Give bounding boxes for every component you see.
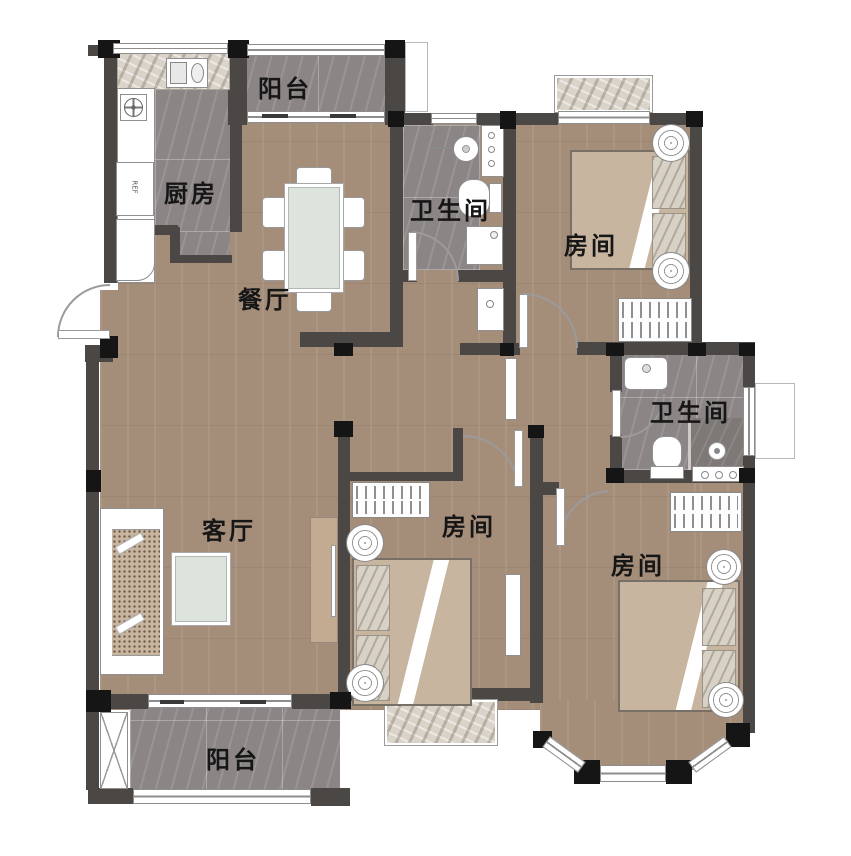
wall	[503, 113, 516, 355]
toilet-right-bathroom	[652, 436, 682, 470]
room-label-bedroom-middle: 房间	[442, 507, 496, 542]
wall	[577, 342, 755, 355]
column	[334, 421, 353, 437]
bedroom-bottom-right-door-leaf	[556, 488, 565, 546]
wall	[338, 423, 350, 694]
room-label-bathroom-right: 卫生间	[650, 393, 731, 428]
wall	[311, 788, 350, 806]
bay-window-bottom	[600, 765, 666, 782]
exterior-shaft	[405, 42, 428, 112]
washing-machine	[466, 226, 503, 265]
wall	[610, 355, 622, 392]
wardrobe-bedroom-bottom-right	[670, 492, 742, 532]
column	[86, 690, 111, 712]
room-label-living: 客厅	[202, 511, 256, 546]
cabinet-knob-icon	[486, 300, 494, 308]
slider-handle-icon	[240, 700, 266, 704]
balcony-bottom-window	[133, 789, 311, 804]
nightstand-icon	[652, 124, 690, 162]
exterior-gap	[388, 100, 705, 113]
basin-spout-icon	[432, 147, 454, 149]
column	[330, 692, 351, 709]
column	[86, 470, 101, 492]
washbasin-right-bathroom	[624, 357, 668, 390]
room-label-bedroom-top-right: 房间	[564, 226, 618, 261]
dining-table	[288, 187, 340, 289]
kitchen-window	[113, 43, 228, 54]
wall	[338, 472, 463, 481]
nightstand-icon	[708, 682, 744, 718]
nightstand-icon	[652, 252, 690, 290]
wall	[170, 255, 232, 263]
window-planter-box	[555, 76, 652, 112]
dining-chair	[262, 250, 287, 281]
tv-screen-icon	[331, 545, 336, 617]
wall	[88, 788, 133, 804]
column	[528, 425, 544, 438]
wall	[86, 350, 99, 694]
column	[388, 111, 404, 127]
room-label-bedroom-bottom-right: 房间	[611, 546, 665, 581]
column	[686, 111, 703, 127]
column	[228, 40, 249, 58]
kitchen-cabinet	[116, 219, 155, 281]
bathroom-right-window	[743, 387, 755, 456]
fridge-label: REF	[131, 180, 139, 193]
nightstand-icon	[346, 524, 384, 562]
slider-handle-icon	[262, 114, 288, 118]
wall	[610, 435, 622, 472]
bathroom-right-door-leaf	[612, 390, 621, 437]
room-label-balcony-top: 阳台	[258, 69, 312, 104]
balcony-top-window	[247, 44, 385, 56]
bath-cabinet	[692, 466, 744, 482]
wall	[390, 113, 403, 347]
column	[688, 343, 706, 356]
column	[385, 40, 405, 58]
dining-chair	[262, 197, 287, 228]
column	[334, 343, 353, 356]
column	[606, 343, 624, 356]
sink-bowl-left-icon	[170, 62, 187, 84]
shower-dot-icon	[714, 448, 720, 454]
sofa	[100, 508, 164, 675]
duct-shaft-icon	[100, 712, 128, 789]
bathroom-top-door-leaf	[408, 232, 417, 281]
dining-chair	[340, 250, 365, 281]
wall	[403, 113, 433, 125]
bathroom-window-bay	[755, 383, 795, 459]
wall	[458, 270, 515, 282]
column	[500, 111, 516, 129]
bathroom-top-window	[431, 113, 477, 124]
wall	[530, 425, 543, 703]
column	[739, 343, 755, 356]
slider-handle-icon	[160, 700, 184, 704]
stove-burner-icon	[124, 98, 143, 117]
dining-chair	[296, 167, 332, 189]
wall	[743, 355, 755, 387]
bedroom-middle-door-leaf	[514, 430, 523, 487]
dining-chair	[296, 290, 332, 312]
entry-door-leaf	[58, 330, 110, 339]
tv-cabinet-bedroom-middle	[505, 574, 521, 656]
hall-doorframe-strip	[505, 358, 517, 420]
nightstand-icon	[706, 549, 742, 585]
sink-bowl-right-icon	[191, 63, 204, 83]
column	[666, 760, 692, 784]
room-label-bathroom-top: 卫生间	[410, 191, 491, 226]
bedroom-top-right-window	[558, 111, 650, 124]
column	[100, 336, 118, 358]
washbasin-drain-icon	[462, 145, 470, 153]
shoe-cabinet	[477, 288, 504, 331]
washer-dial-icon	[490, 231, 498, 239]
wardrobe-bedroom-middle	[352, 482, 430, 518]
room-label-dining: 餐厅	[238, 280, 292, 315]
basin-faucet-icon	[642, 364, 651, 373]
wall	[743, 483, 755, 733]
toilet-tank-icon	[650, 466, 684, 479]
column	[500, 343, 514, 356]
wall	[230, 113, 242, 232]
shelf-knob-icon	[488, 132, 495, 139]
room-label-balcony-bottom: 阳台	[206, 740, 260, 775]
column	[739, 468, 755, 483]
shelf-knob-icon	[488, 146, 495, 153]
room-label-kitchen: 厨房	[164, 174, 218, 209]
window-planter-box	[385, 700, 497, 745]
shelf-knob-icon	[488, 160, 495, 167]
column	[606, 468, 624, 483]
dining-chair	[340, 197, 365, 228]
nightstand-icon	[346, 664, 384, 702]
wardrobe-bedroom-top-right	[618, 298, 692, 342]
floor-plan: REF	[0, 0, 851, 856]
floor-kitchen	[155, 88, 230, 232]
slider-handle-icon	[330, 114, 356, 118]
bedroom-top-right-door-leaf	[519, 294, 528, 348]
coffee-table	[175, 556, 227, 622]
